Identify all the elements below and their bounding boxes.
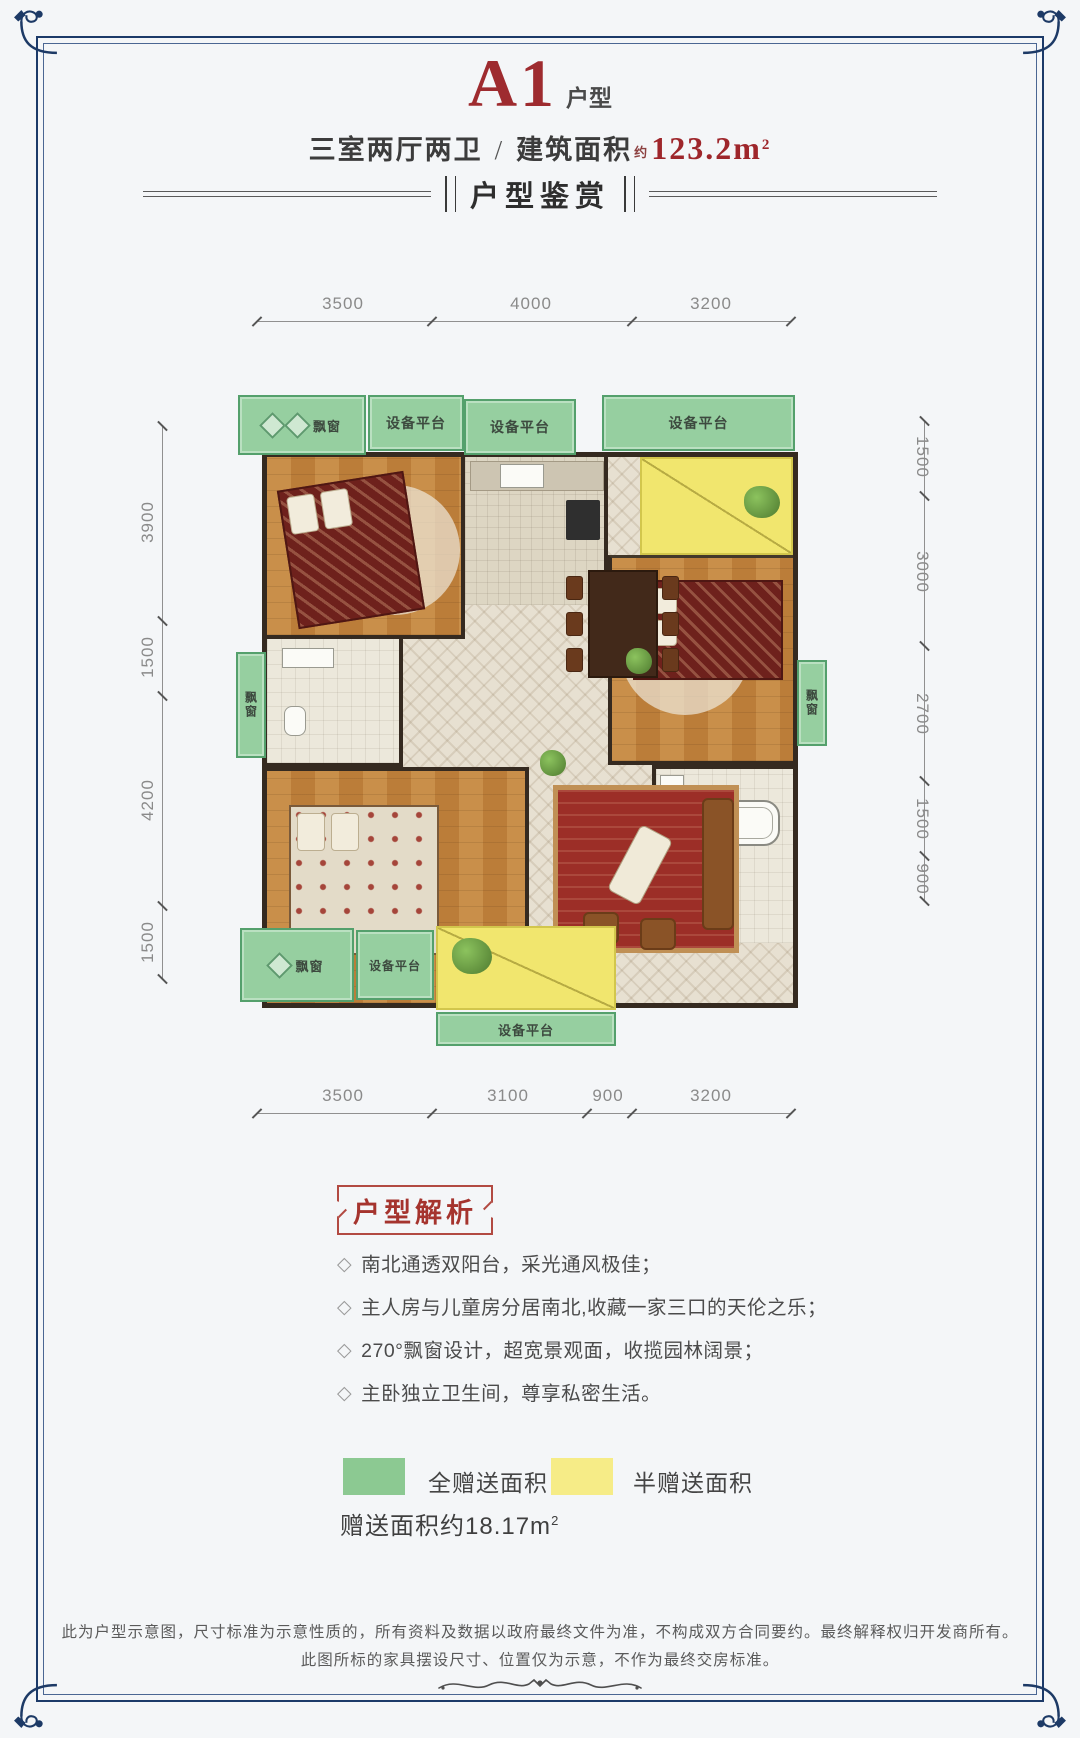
equipment-platform-label: 设备平台 [369, 957, 421, 974]
armchair [640, 918, 676, 950]
bathroom-left-toilet [284, 706, 306, 736]
equipment-platform-top-left: 设备平台 [368, 395, 464, 451]
dimension-line-top [256, 321, 792, 322]
equipment-platform-label: 设备平台 [386, 413, 446, 433]
legend-swatch-full-gift [343, 1458, 405, 1495]
equipment-platform-top-right: 设备平台 [602, 395, 795, 451]
dim-right-3: 2700 [911, 682, 933, 746]
diamond-bullet-icon: ◇ [337, 1381, 352, 1407]
dim-left-1: 3900 [137, 490, 159, 554]
dining-chair [566, 612, 583, 636]
gift-area-note: 赠送面积约18.17m2 [340, 1506, 559, 1541]
dim-top-3: 3200 [690, 294, 732, 314]
dim-right-5: 900 [911, 847, 933, 911]
pillow [331, 813, 359, 851]
legend-label-full-gift: 全赠送面积 [428, 1464, 548, 1498]
analysis-bullet: ◇ 南北通透双阳台，采光通风极佳； [337, 1252, 837, 1278]
banner-line-left [143, 191, 431, 197]
dim-left-4: 1500 [137, 910, 159, 974]
diamond-bullet-icon: ◇ [337, 1295, 352, 1321]
bullet-text: 主人房与儿童房分居南北,收藏一家三口的天伦之乐； [361, 1295, 827, 1321]
dim-bottom-1: 3500 [322, 1086, 364, 1106]
dim-left-2: 1500 [137, 625, 159, 689]
disclaimer-line-1: 此为户型示意图，尺寸标准为示意性质的，所有资料及数据以政府最终文件为准，不构成双… [0, 1620, 1080, 1642]
equipment-platform-bottom-left: 设备平台 [356, 930, 434, 1000]
dim-right-1: 1500 [911, 425, 933, 489]
area-approx: 约 [634, 145, 649, 160]
pillow [297, 813, 325, 851]
dim-left-3: 4200 [137, 768, 159, 832]
dim-right-2: 3000 [911, 540, 933, 604]
brochure-page: A1户型 三室两厅两卫/建筑面积约123.2m2 户型鉴赏 [0, 0, 1080, 1738]
unit-subtitle: 三室两厅两卫/建筑面积约123.2m2 [0, 128, 1080, 167]
dim-right-4: 1500 [911, 787, 933, 851]
legend-swatch-half-gift [551, 1458, 613, 1495]
bed-top-left [277, 471, 425, 629]
plant-diamond-icon [267, 952, 294, 979]
area-label: 建筑面积 [516, 135, 632, 165]
analysis-title-box: 户型解析 [337, 1185, 493, 1235]
banner-bar-right [624, 176, 635, 212]
bay-window-top-left: 飘窗 [238, 395, 366, 455]
bullet-text: 南北通透双阳台，采光通风极佳； [361, 1252, 661, 1278]
kitchen-stove [566, 500, 600, 540]
analysis-bullet: ◇ 主卧独立卫生间，尊享私密生活。 [337, 1381, 837, 1407]
dim-bottom-4: 3200 [690, 1086, 732, 1106]
dimension-line-bottom [256, 1113, 792, 1114]
bay-window-label: 飘窗 [313, 416, 341, 435]
equipment-platform-top-middle: 设备平台 [464, 399, 576, 455]
bay-window-label: 飘窗 [295, 956, 323, 975]
bay-window-left: 飘窗 [236, 652, 266, 758]
equipment-platform-label: 设备平台 [490, 417, 550, 437]
dim-top-2: 4000 [510, 294, 552, 314]
plant-icon [452, 938, 492, 974]
equipment-platform-bottom: 设备平台 [436, 1012, 616, 1046]
bullet-text: 主卧独立卫生间，尊享私密生活。 [361, 1381, 661, 1407]
banner-line-right [649, 191, 937, 197]
area-superscript: 2 [762, 137, 772, 153]
unit-code-suffix: 户型 [566, 85, 612, 111]
dining-chair [662, 612, 679, 636]
bathroom-left-sink [282, 648, 334, 668]
banner-bar-left [445, 176, 456, 212]
plant-icon [626, 648, 652, 674]
analysis-bullet: ◇ 270°飘窗设计，超宽景观面，收揽园林阔景； [337, 1338, 837, 1364]
analysis-bullet-list: ◇ 南北通透双阳台，采光通风极佳； ◇ 主人房与儿童房分居南北,收藏一家三口的天… [337, 1252, 837, 1424]
gift-area-superscript: 2 [551, 1513, 559, 1528]
corner-flourish-icon [1021, 1683, 1067, 1729]
sofa-main [702, 798, 734, 930]
dining-chair [662, 576, 679, 600]
analysis-title: 户型解析 [353, 1191, 477, 1230]
equipment-platform-label: 设备平台 [498, 1020, 554, 1039]
analysis-bullet: ◇ 主人房与儿童房分居南北,收藏一家三口的天伦之乐； [337, 1295, 837, 1321]
subtitle-divider: / [495, 135, 505, 165]
disclaimer-line-2: 此图所标的家具摆设尺寸、位置仅为示意，不作为最终交房标准。 [0, 1648, 1080, 1670]
diamond-bullet-icon: ◇ [337, 1338, 352, 1364]
plant-diamond-icon [259, 412, 286, 439]
plant-diamond-icon [284, 412, 311, 439]
bay-window-right: 飘窗 [797, 660, 827, 746]
dim-top-1: 3500 [322, 294, 364, 314]
legend-label-half-gift: 半赠送面积 [633, 1464, 753, 1498]
gift-area-text: 赠送面积约18.17m [340, 1513, 551, 1540]
page-title: A1户型 [0, 44, 1080, 123]
diamond-bullet-icon: ◇ [337, 1252, 352, 1278]
dining-chair [662, 648, 679, 672]
plant-icon [744, 486, 780, 518]
dimension-line-left [162, 425, 163, 980]
dim-bottom-3: 900 [592, 1086, 623, 1106]
dining-chair [566, 576, 583, 600]
unit-code: A1 [468, 45, 557, 121]
box-notch [330, 1201, 347, 1218]
footer-flourish-icon [435, 1672, 645, 1701]
area-value: 123.2m [651, 130, 762, 166]
dining-chair [566, 648, 583, 672]
box-notch [483, 1201, 500, 1218]
pillow [320, 488, 354, 530]
equipment-platform-label: 设备平台 [669, 413, 729, 433]
bay-window-bottom-left: 飘窗 [240, 928, 354, 1002]
banner-title: 户型鉴赏 [470, 173, 610, 215]
bay-window-label: 飘窗 [804, 689, 821, 717]
unit-spec: 三室两厅两卫 [309, 135, 483, 165]
dim-bottom-2: 3100 [487, 1086, 529, 1106]
bullet-text: 270°飘窗设计，超宽景观面，收揽园林阔景； [361, 1338, 763, 1364]
bay-window-label: 飘窗 [243, 691, 260, 719]
section-banner: 户型鉴赏 [0, 172, 1080, 216]
kitchen-sink [500, 464, 544, 488]
corner-flourish-icon [13, 1683, 59, 1729]
pillow [286, 493, 320, 535]
plant-icon [540, 750, 566, 776]
